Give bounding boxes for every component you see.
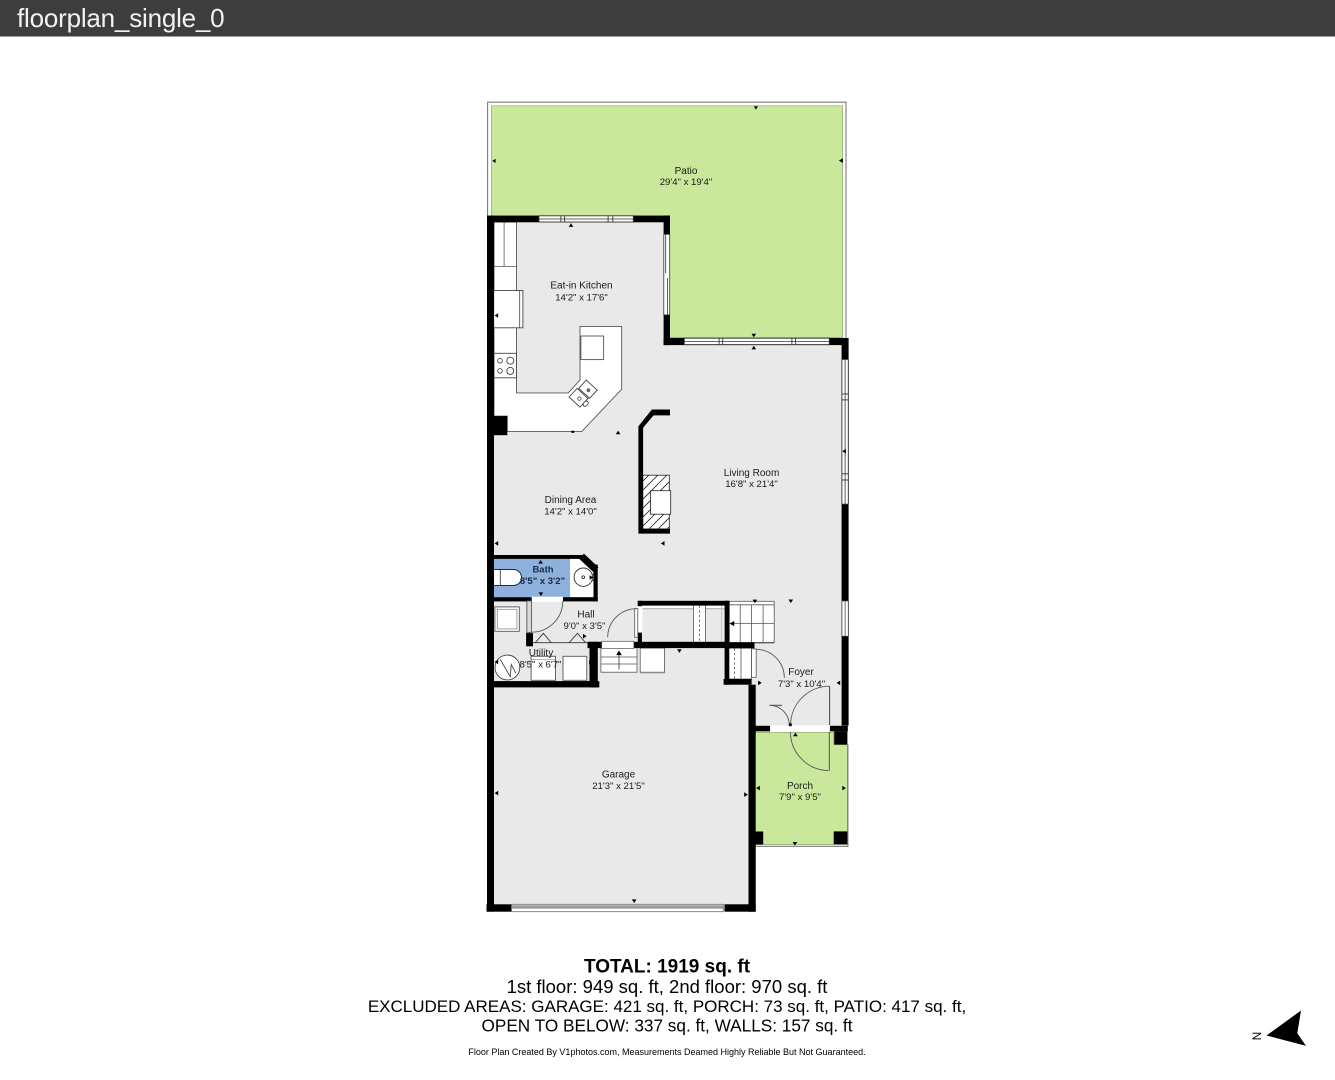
svg-text:floorplan_single_0: floorplan_single_0 <box>17 3 224 33</box>
svg-text:Living Room: Living Room <box>724 468 780 479</box>
svg-text:14'2" x 14'0": 14'2" x 14'0" <box>544 507 597 518</box>
svg-text:1st floor: 949 sq. ft, 2nd flo: 1st floor: 949 sq. ft, 2nd floor: 970 sq… <box>507 976 828 997</box>
svg-text:Garage: Garage <box>602 770 636 781</box>
svg-text:7'3" x 10'4": 7'3" x 10'4" <box>778 679 825 690</box>
svg-text:OPEN TO BELOW: 337 sq. ft, WAL: OPEN TO BELOW: 337 sq. ft, WALLS: 157 sq… <box>482 1016 853 1036</box>
svg-text:14'2" x 17'6": 14'2" x 17'6" <box>555 293 608 304</box>
svg-text:Utility: Utility <box>529 648 553 659</box>
svg-text:N: N <box>1250 1032 1264 1041</box>
svg-text:Eat-in Kitchen: Eat-in Kitchen <box>550 281 612 292</box>
svg-text:Bath: Bath <box>532 565 553 576</box>
svg-text:Porch: Porch <box>787 781 813 792</box>
svg-text:29'4" x 19'4": 29'4" x 19'4" <box>660 177 713 188</box>
svg-text:Dining Area: Dining Area <box>545 495 597 506</box>
svg-text:16'8" x 21'4": 16'8" x 21'4" <box>725 479 778 490</box>
svg-text:EXCLUDED AREAS: GARAGE: 421 sq: EXCLUDED AREAS: GARAGE: 421 sq. ft, PORC… <box>368 997 966 1016</box>
svg-text:21'3" x 21'5": 21'3" x 21'5" <box>592 781 645 792</box>
svg-text:8'5" x 6'7": 8'5" x 6'7" <box>520 660 562 671</box>
svg-text:Floor Plan Created By V1photos: Floor Plan Created By V1photos.com, Meas… <box>468 1047 865 1057</box>
svg-text:Hall: Hall <box>577 610 594 621</box>
svg-text:8'5" x 3'2": 8'5" x 3'2" <box>520 576 565 587</box>
svg-text:Foyer: Foyer <box>788 667 814 678</box>
svg-text:Patio: Patio <box>675 166 698 177</box>
svg-text:7'9" x 9'5": 7'9" x 9'5" <box>779 792 821 803</box>
svg-text:TOTAL: 1919 sq. ft: TOTAL: 1919 sq. ft <box>584 957 751 978</box>
svg-text:9'0" x 3'5": 9'0" x 3'5" <box>564 621 606 632</box>
